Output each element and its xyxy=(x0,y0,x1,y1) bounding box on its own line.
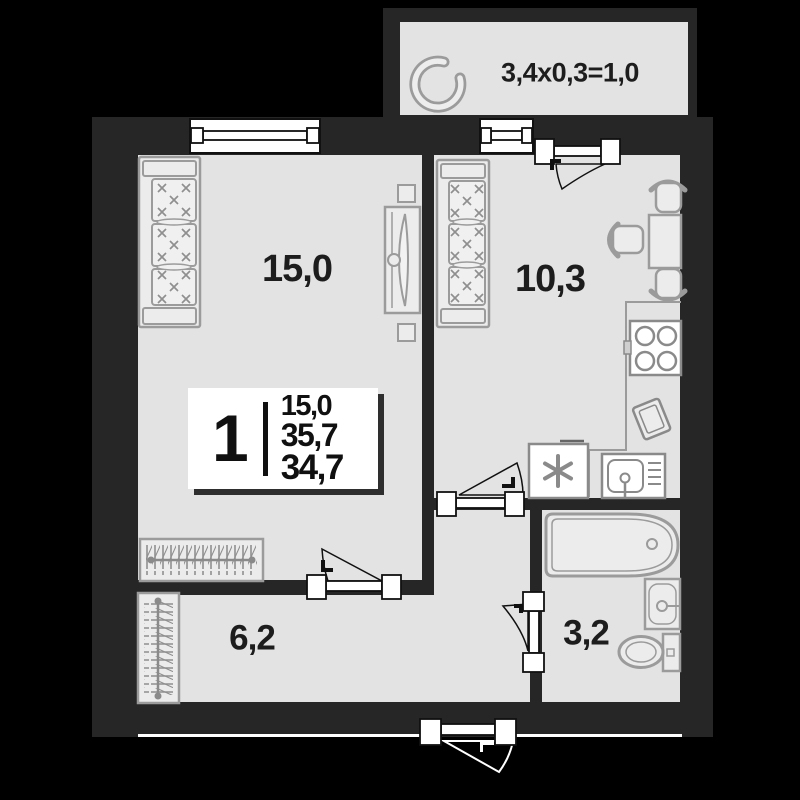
floor-plan: 3,4x0,3=1,0 15,0 10,3 6,2 3,2 1 15,0 35,… xyxy=(0,0,800,800)
door-handle-icon xyxy=(480,742,494,745)
bathroom-area-label: 3,2 xyxy=(563,616,609,651)
kitchen-sink xyxy=(602,454,665,498)
door-handle-icon xyxy=(550,159,561,163)
burner-icon xyxy=(658,327,676,345)
sofa-kitchen xyxy=(437,160,489,327)
area-value-3: 34,7 xyxy=(281,451,343,484)
chair-left xyxy=(613,226,643,253)
living-room-area-label: 15,0 xyxy=(262,250,332,288)
washbasin xyxy=(645,579,680,629)
wardrobe-horizontal xyxy=(140,539,263,581)
fridge xyxy=(529,441,588,498)
sofa-living-room xyxy=(139,157,200,327)
divider xyxy=(263,402,268,476)
stove xyxy=(624,321,681,375)
kitchen-area-label: 10,3 xyxy=(515,260,585,298)
burner-icon xyxy=(658,352,676,370)
chair-top xyxy=(656,183,681,212)
room-count: 1 xyxy=(212,410,247,466)
floor-plan-drawing xyxy=(0,0,800,800)
entry-door xyxy=(420,719,516,772)
drain-icon xyxy=(647,539,657,549)
area-values: 15,0 35,7 34,7 xyxy=(281,393,343,484)
speaker-icon xyxy=(398,324,415,341)
area-value-1: 15,0 xyxy=(281,393,343,421)
living-room-window xyxy=(190,119,320,153)
apartment-info-card: 1 15,0 35,7 34,7 xyxy=(188,388,378,489)
balcony-dimension-label: 3,4x0,3=1,0 xyxy=(501,60,639,87)
toilet xyxy=(619,634,680,671)
faucet-icon xyxy=(621,474,630,483)
burner-icon xyxy=(636,352,654,370)
speaker-icon xyxy=(398,185,415,202)
facade-line-left xyxy=(138,734,421,737)
hallway-area-label: 6,2 xyxy=(229,621,275,656)
dining-table xyxy=(649,215,681,268)
bathtub xyxy=(546,514,678,576)
burner-icon xyxy=(636,327,654,345)
facade-line-right xyxy=(516,734,682,737)
door-handle-icon xyxy=(502,484,515,488)
kitchen-window xyxy=(480,119,533,153)
chair-bottom xyxy=(656,269,681,298)
wardrobe-vertical xyxy=(138,593,179,703)
faucet-icon xyxy=(657,601,667,611)
area-value-2: 35,7 xyxy=(281,420,343,450)
